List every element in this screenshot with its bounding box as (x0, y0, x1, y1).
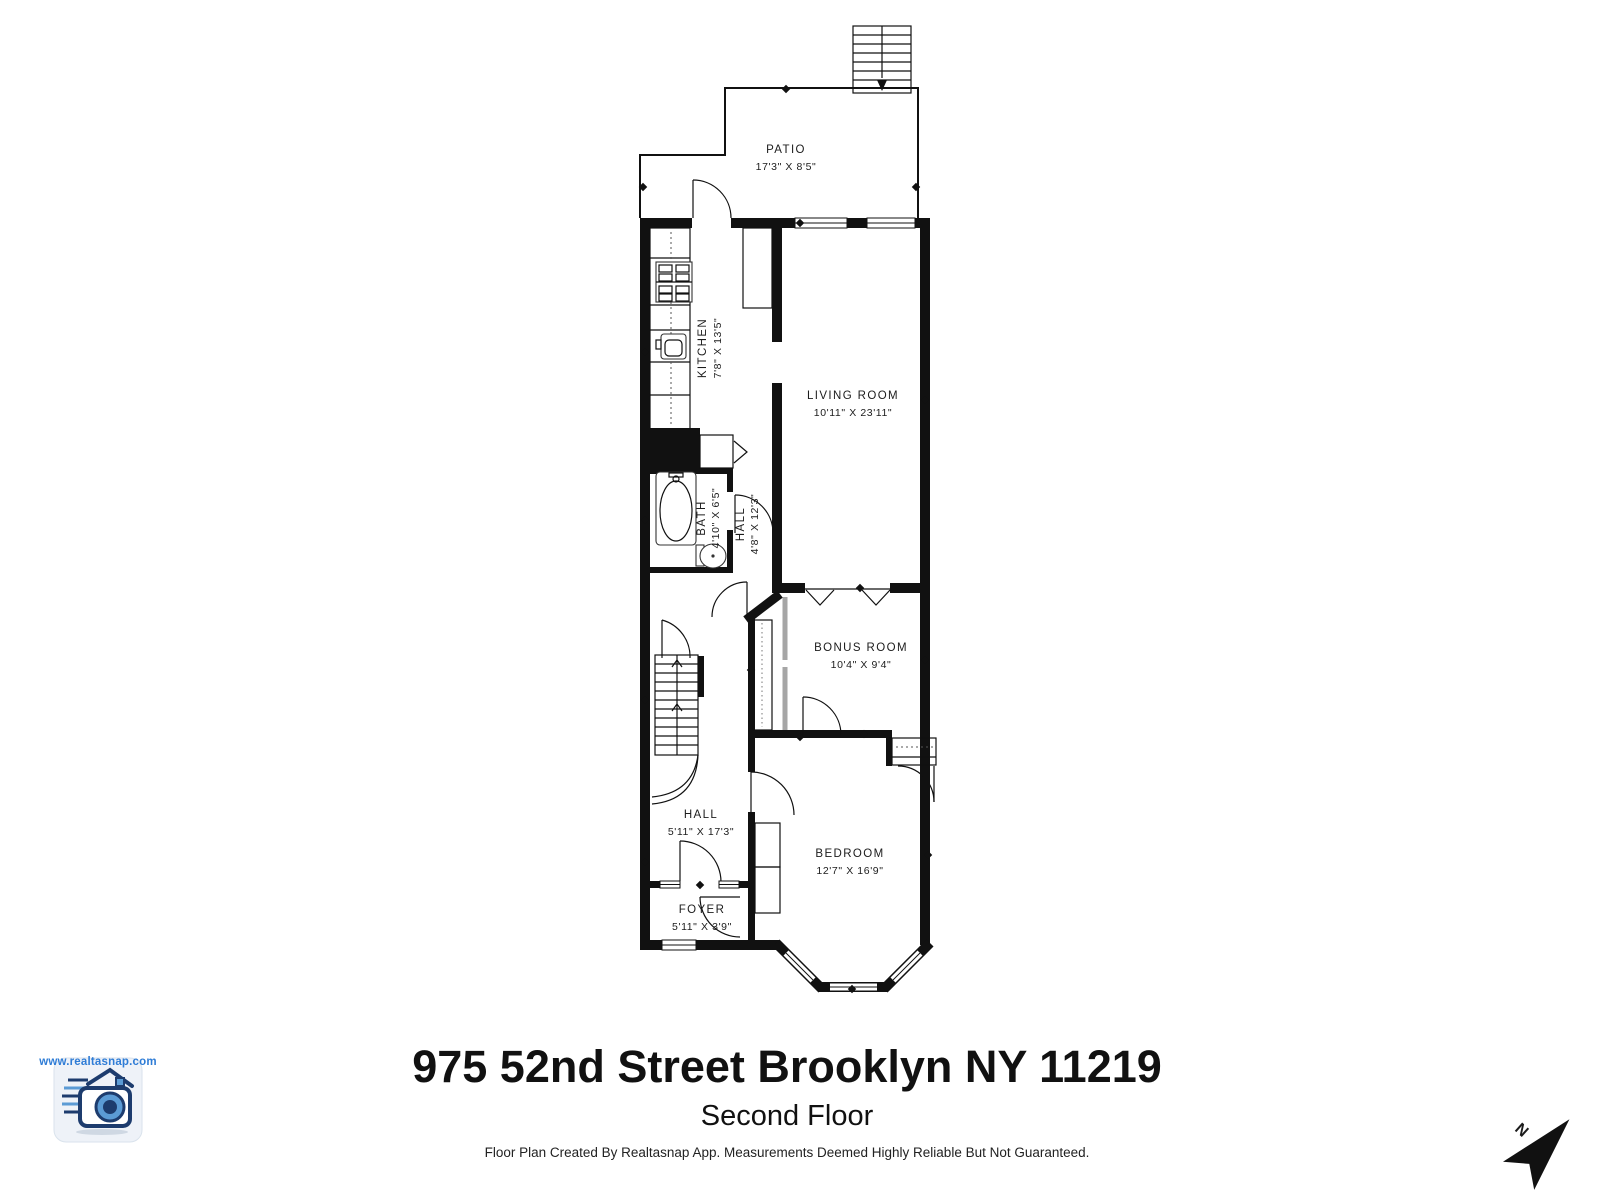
bedroom: BEDROOM 12'7" X 16'9" (751, 738, 936, 989)
hall-lower-door (712, 582, 747, 617)
patio-stairs (853, 26, 911, 93)
room-label-bedroom: BEDROOM (815, 848, 884, 860)
sink-icon (656, 334, 686, 359)
room-dims-hall-lower: 5'11" X 17'3" (668, 826, 734, 838)
shaft (643, 428, 700, 468)
patio-door (693, 180, 731, 218)
hall-closet (700, 435, 733, 468)
room-dims-bedroom: 12'7" X 16'9" (816, 865, 883, 877)
bedroom-closet-left (755, 867, 780, 913)
room-label-hall-lower: HALL (684, 809, 718, 821)
kitchen-pantry (743, 228, 772, 308)
floor-plan-page: KITCHEN 7'8" X 13'5" (0, 0, 1600, 1200)
living-bonus-opening (805, 589, 890, 605)
room-dims-hall-upper: 4'8" X 12'3" (749, 494, 761, 555)
bay-window (776, 943, 930, 989)
room-label-living-room: LIVING ROOM (807, 390, 899, 402)
stairs-down-arrow (877, 80, 887, 91)
hall-divider-door (680, 841, 721, 882)
room-dims-bath: 4'10" X 6'5" (710, 488, 722, 549)
stove-icon (656, 262, 692, 302)
living-room: LIVING ROOM 10'11" X 23'11" (805, 390, 899, 605)
stair-top-door (662, 620, 690, 658)
bonus-door (803, 697, 841, 735)
address-title: 975 52nd Street Brooklyn NY 11219 (0, 1042, 1574, 1092)
foyer: FOYER 5'11" X 3'9" (660, 881, 740, 937)
room-label-patio: PATIO (766, 144, 806, 156)
fold-door-icon (806, 590, 834, 605)
patio-outline (640, 26, 918, 218)
floor-plan-canvas: KITCHEN 7'8" X 13'5" (0, 0, 1600, 1200)
disclaimer-text: Floor Plan Created By Realtasnap App. Me… (0, 1145, 1574, 1160)
room-label-foyer: FOYER (679, 904, 726, 916)
fold-door-icon (862, 590, 890, 605)
bathtub-icon (656, 472, 696, 545)
brand-block: www.realtasnap.com (36, 1054, 160, 1068)
title-block: 975 52nd Street Brooklyn NY 11219 Second… (0, 1042, 1574, 1160)
room-label-bath: BATH (696, 500, 708, 535)
kitchen: KITCHEN 7'8" X 13'5" (650, 228, 772, 430)
room-dims-foyer: 5'11" X 3'9" (672, 921, 732, 933)
room-label-hall-upper: HALL (735, 507, 747, 541)
closet-bifold-icon (734, 441, 747, 463)
room-dims-living-room: 10'11" X 23'11" (814, 407, 892, 419)
stair-hall: HALL 5'11" X 17'3" (652, 620, 734, 882)
room-label-kitchen: KITCHEN (697, 318, 709, 378)
room-dims-bonus-room: 10'4" X 9'4" (831, 659, 892, 671)
bedroom-corridor-door (751, 772, 794, 815)
floor-subtitle: Second Floor (0, 1100, 1574, 1133)
room-dims-kitchen: 7'8" X 13'5" (712, 318, 724, 379)
bedroom-closet-left (755, 823, 780, 867)
room-dims-patio: 17'3" X 8'5" (756, 161, 817, 173)
bonus-room: BONUS ROOM 10'4" X 9'4" (753, 597, 908, 735)
room-label-bonus-room: BONUS ROOM (814, 642, 908, 654)
brand-url: www.realtasnap.com (36, 1056, 160, 1068)
staircase (652, 655, 698, 804)
